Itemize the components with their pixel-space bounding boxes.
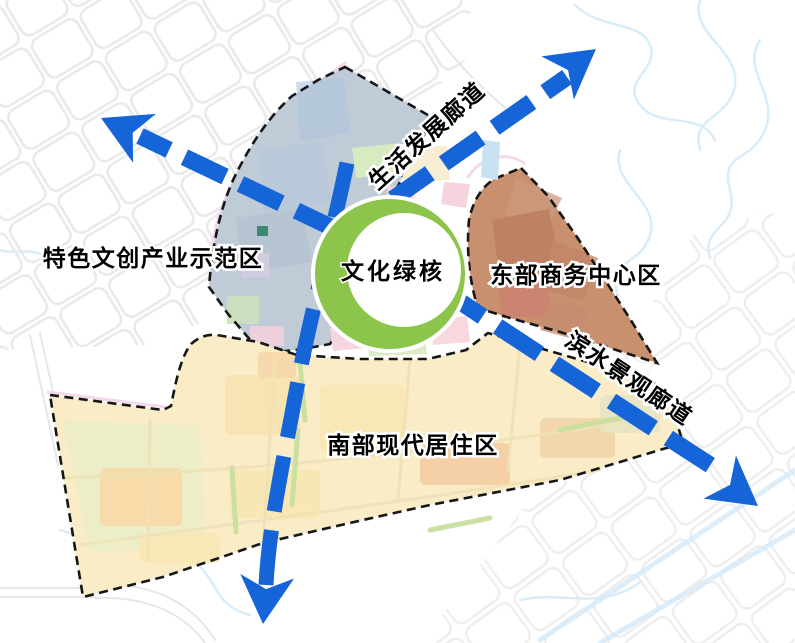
- zone-south-label: 南部现代居住区: [327, 432, 499, 458]
- zone-west-label: 特色文创产业示范区: [43, 245, 264, 271]
- green-core-label: 文化绿核: [341, 258, 445, 284]
- zone-west-parcel-green: [227, 296, 259, 324]
- zone-west-parcel-teal: [257, 226, 268, 236]
- map-canvas: 文化绿核 特色文创产业示范区 东部商务中心区 南部现代居住区 生活发展廊道 滨水…: [0, 0, 795, 643]
- planning-structure-diagram: 文化绿核 特色文创产业示范区 东部商务中心区 南部现代居住区 生活发展廊道 滨水…: [0, 0, 795, 643]
- zone-east-label: 东部商务中心区: [490, 262, 662, 288]
